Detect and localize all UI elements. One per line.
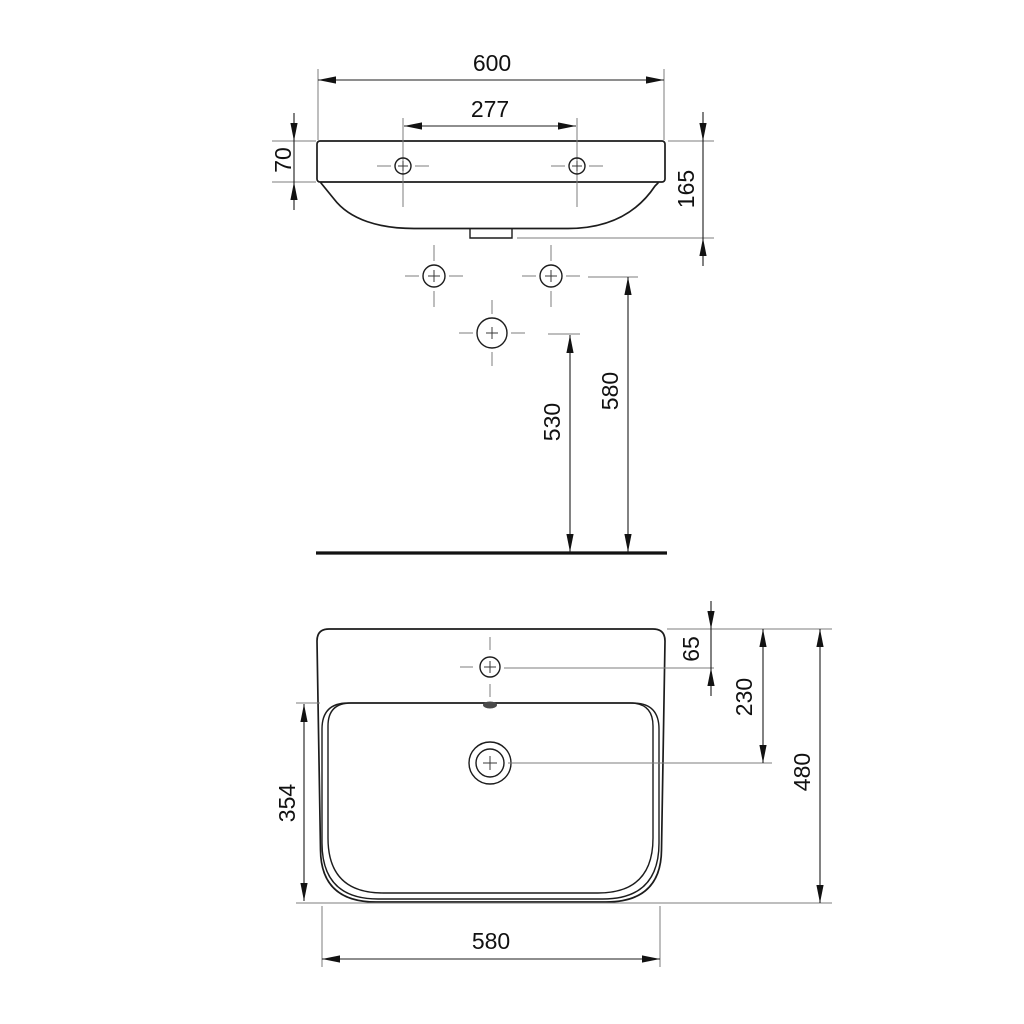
- dim-label-faucet-spacing: 277: [471, 96, 509, 122]
- dim-label-bottom-width: 580: [472, 928, 510, 954]
- dim-label-bowl-depth: 354: [274, 784, 300, 823]
- plan-faucet-hole: [460, 637, 714, 697]
- plan-sink-outline: [317, 629, 665, 902]
- dim-bowl-depth: 354: [274, 704, 308, 901]
- dim-drain-offset: 230: [731, 629, 767, 763]
- dim-fixing-height: 580: [588, 277, 638, 552]
- front-bowl-outline: [321, 183, 658, 229]
- dim-overall-depth: 480: [789, 629, 824, 903]
- plan-bowl-outer: [322, 703, 659, 899]
- dim-rim-height: 70: [270, 113, 316, 210]
- dim-label-fixing-height: 580: [597, 372, 623, 410]
- dim-faucet-spacing: 277: [404, 96, 576, 130]
- plan-overflow-slot: [483, 702, 497, 709]
- front-drain-hole: [459, 300, 525, 366]
- dim-faucet-offset: 65: [678, 601, 715, 696]
- dim-label-drain-height: 530: [539, 403, 565, 441]
- dim-drain-height: 530: [539, 334, 580, 552]
- plan-bowl-inner: [328, 703, 653, 893]
- drawing-canvas: 600 277 70 165: [0, 0, 1024, 1024]
- dim-label-overall-depth: 480: [789, 753, 815, 791]
- plan-view: 65 230 480 354: [274, 601, 832, 967]
- plan-drain-hole: [469, 742, 772, 784]
- front-view: 600 277 70 165: [270, 50, 714, 553]
- dim-label-drain-offset: 230: [731, 678, 757, 716]
- dim-label-basin-height: 165: [673, 170, 699, 208]
- front-fixing-holes: [405, 245, 580, 307]
- dim-label-faucet-offset: 65: [678, 636, 704, 662]
- dim-basin-height: 165: [517, 112, 714, 266]
- dim-label-overall-width: 600: [473, 50, 511, 76]
- dim-label-rim-height: 70: [270, 147, 296, 173]
- front-faucet-holes: [377, 118, 603, 207]
- dim-bottom-width: 580: [322, 906, 660, 967]
- front-drain-outlet: [470, 229, 512, 238]
- washbasin-technical-drawing-page: { "drawing": { "type": "washbasin-dimens…: [0, 0, 1024, 1024]
- front-rim-outline: [317, 141, 665, 182]
